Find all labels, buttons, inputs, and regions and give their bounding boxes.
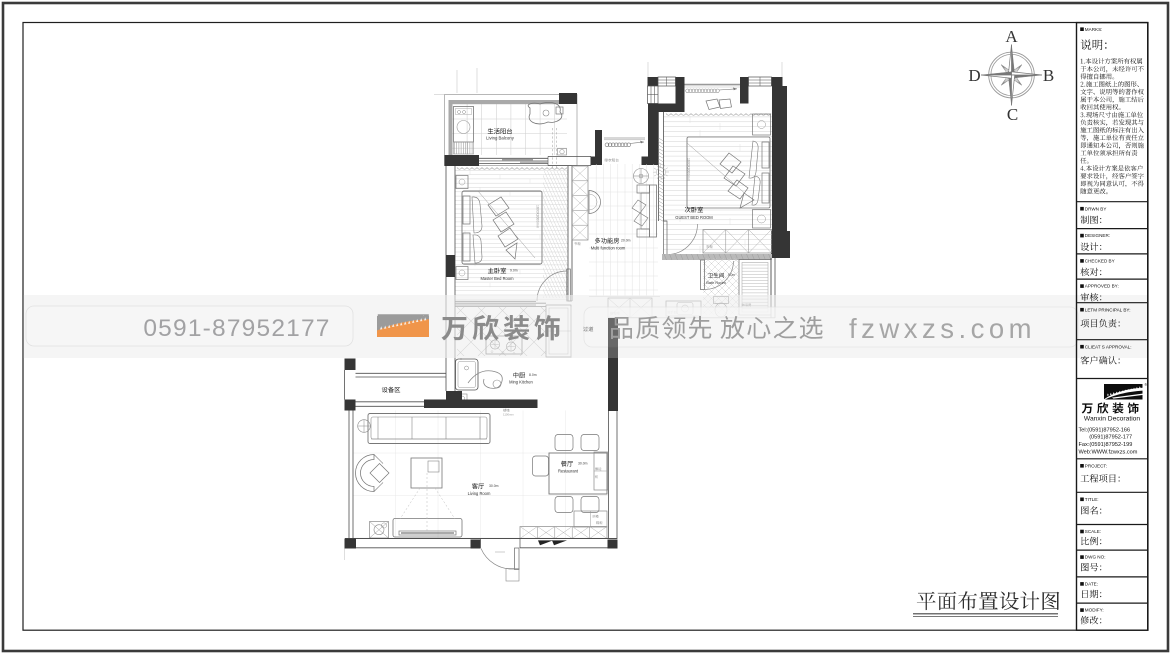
svg-text:Fax:(0591)87952-199: Fax:(0591)87952-199 — [1079, 442, 1133, 448]
svg-text:B: B — [1043, 66, 1054, 85]
svg-text:CLIEAT S APPROVAL:: CLIEAT S APPROVAL: — [1085, 344, 1132, 349]
svg-text:Living Room: Living Room — [468, 491, 491, 496]
svg-text:(0591)87952-177: (0591)87952-177 — [1089, 435, 1132, 441]
svg-text:MARKS:: MARKS: — [1085, 27, 1103, 32]
svg-text:Tel:(0591)87952-166: Tel:(0591)87952-166 — [1079, 428, 1131, 434]
svg-text:30.0m: 30.0m — [578, 462, 588, 466]
svg-text:APPROVED BY:: APPROVED BY: — [1085, 284, 1119, 289]
svg-text:Multi function room: Multi function room — [591, 246, 626, 251]
svg-text:CHECKED BY: CHECKED BY — [1085, 259, 1115, 264]
svg-text:30.0m: 30.0m — [489, 484, 499, 488]
svg-text:SCALE:: SCALE: — [1085, 529, 1101, 534]
svg-text:Master Bed Room: Master Bed Room — [481, 276, 515, 281]
svg-text:A: A — [1005, 27, 1018, 46]
svg-text:LETM PRINCIPAL BY:: LETM PRINCIPAL BY: — [1085, 307, 1131, 312]
svg-text:Living Balcony: Living Balcony — [486, 136, 515, 141]
svg-text:8.0m: 8.0m — [529, 373, 537, 377]
svg-text:DESIGNER:: DESIGNER: — [1085, 233, 1110, 238]
svg-text:DWG NO:: DWG NO: — [1085, 555, 1106, 560]
svg-text:20.0m: 20.0m — [621, 239, 631, 243]
svg-text:DRWN BY: DRWN BY — [1085, 206, 1107, 211]
svg-text:MODIFY:: MODIFY: — [1085, 608, 1104, 613]
svg-text:TITLE:: TITLE: — [1085, 497, 1099, 502]
svg-text:9.0m: 9.0m — [510, 269, 518, 273]
svg-text:Restaurant: Restaurant — [558, 469, 579, 474]
svg-text:Ming Kitchen: Ming Kitchen — [509, 380, 533, 385]
svg-text:GUEST BED ROOM: GUEST BED ROOM — [675, 215, 713, 220]
svg-text:DATE:: DATE: — [1085, 582, 1098, 587]
svg-text:fzwxzs.com: fzwxzs.com — [849, 313, 1036, 344]
svg-text:5.0m: 5.0m — [728, 273, 735, 277]
svg-text:Web:WWW.fzwxzs.com: Web:WWW.fzwxzs.com — [1079, 450, 1138, 456]
svg-text:Bath Room: Bath Room — [706, 280, 725, 285]
svg-text:D: D — [968, 66, 980, 85]
svg-text:0591-87952177: 0591-87952177 — [143, 315, 330, 342]
svg-text:Wanxin Decoration: Wanxin Decoration — [1084, 416, 1141, 423]
svg-text:PROJECT:: PROJECT: — [1085, 463, 1107, 468]
svg-text:C: C — [1007, 105, 1018, 124]
svg-text:1100mm: 1100mm — [503, 413, 514, 417]
